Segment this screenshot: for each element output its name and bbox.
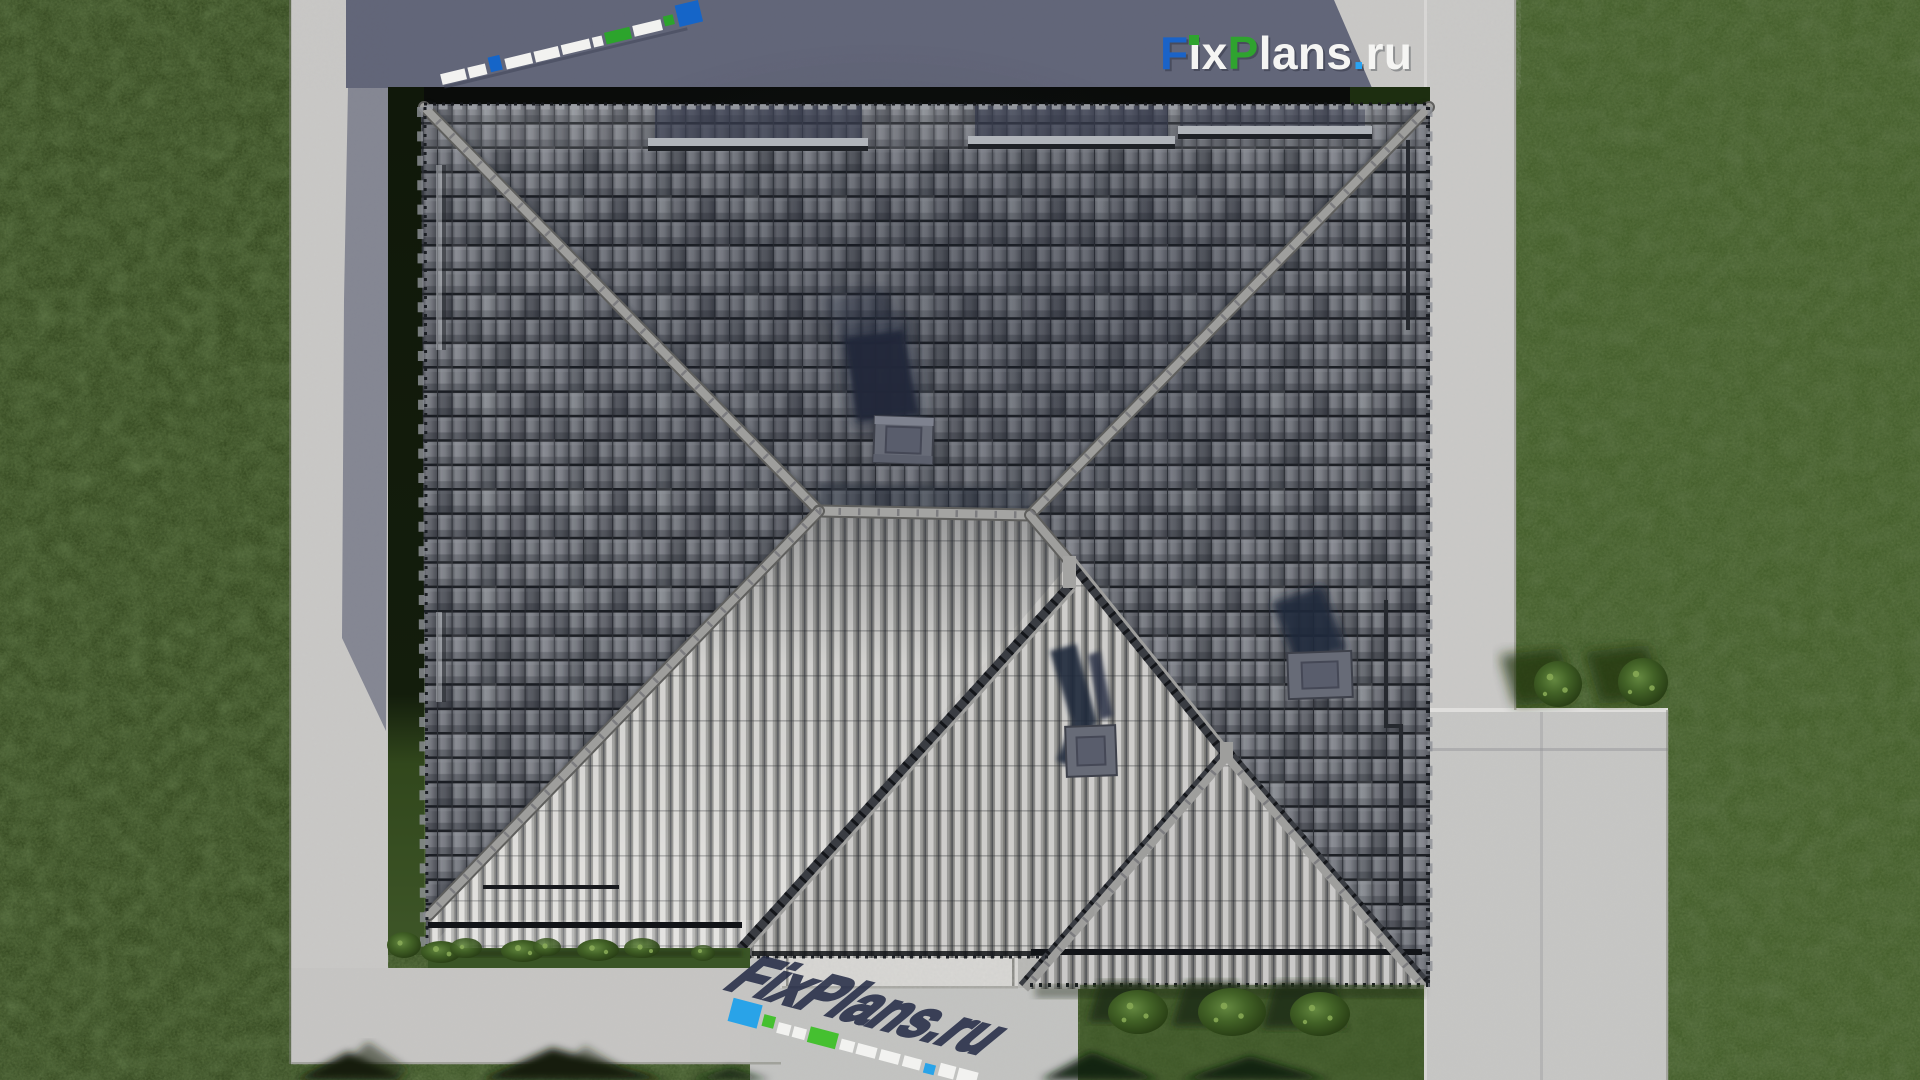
svg-text:FixPlans.ru: FixPlans.ru [1160, 27, 1412, 79]
